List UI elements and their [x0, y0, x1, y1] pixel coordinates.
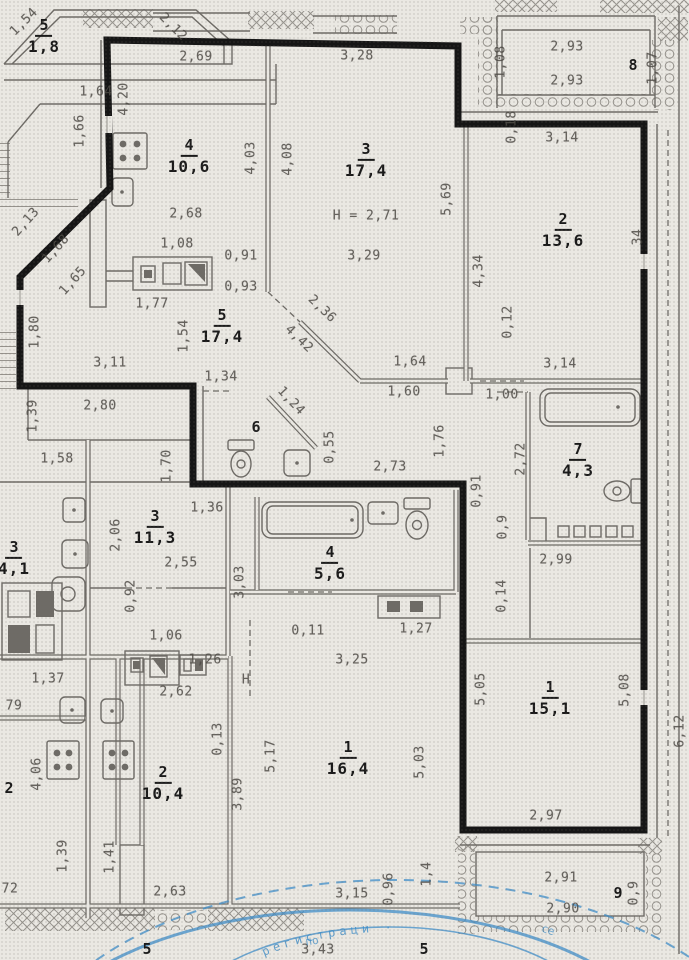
bathtub-icon [262, 502, 363, 538]
toilet-icon [404, 498, 430, 539]
sink-icon [284, 450, 310, 476]
toilet-icon [228, 440, 254, 477]
stove-icon [47, 741, 79, 779]
bathtub-icon [540, 389, 640, 426]
toilet-icon [52, 577, 85, 611]
wall-hatching [0, 0, 689, 938]
vent-block [378, 596, 440, 618]
sink-icon [368, 502, 398, 524]
stove-icon [113, 133, 147, 169]
floor-plan-page: · регистраци · 410,6317,4213,6517,4674,3… [0, 0, 689, 960]
window-notches [15, 116, 650, 705]
thin-walls [0, 6, 679, 954]
floorplan-canvas: · регистраци · [0, 0, 689, 960]
cabinet-squares-row [558, 526, 633, 537]
toilet-icon [604, 479, 642, 503]
cabinet-icon [2, 583, 62, 660]
kitchen-vent-block [133, 257, 212, 290]
sink-icon [112, 178, 133, 206]
sink-icon [62, 540, 88, 568]
fixtures [2, 133, 642, 779]
sink-icon [63, 498, 85, 522]
